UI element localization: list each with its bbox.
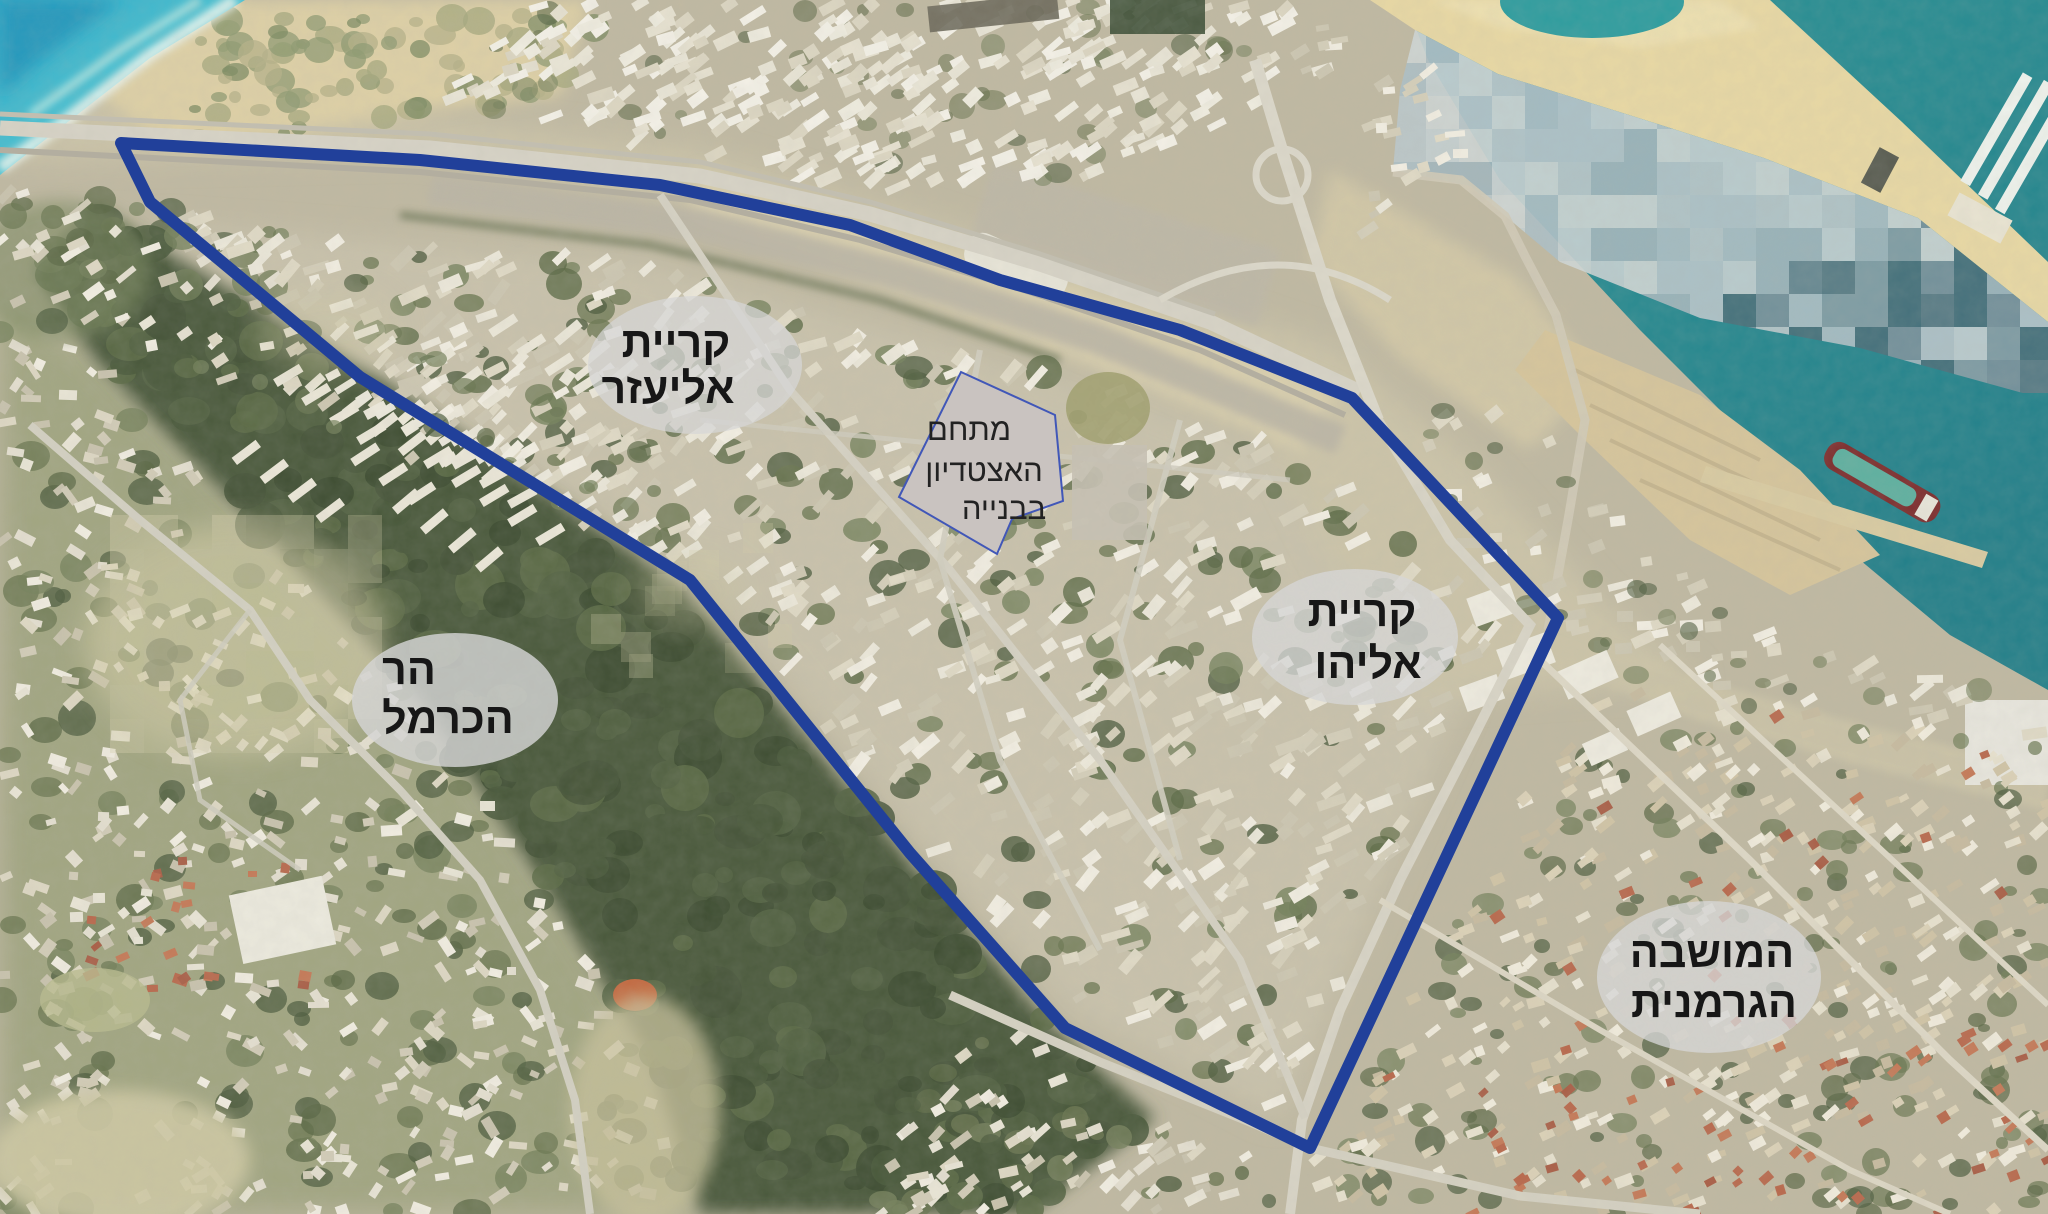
svg-text:בבנייה: בבנייה <box>962 491 1046 526</box>
svg-text:אליעזר: אליעזר <box>601 365 734 413</box>
svg-text:המושבה: המושבה <box>1630 929 1794 977</box>
svg-text:הכרמל: הכרמל <box>382 695 514 743</box>
svg-text:קריית: קריית <box>622 319 731 367</box>
svg-text:הגרמנית: הגרמנית <box>1631 979 1797 1027</box>
svg-text:האצטדיון: האצטדיון <box>925 453 1043 488</box>
svg-text:מתחם: מתחם <box>927 412 1011 447</box>
svg-text:אליהו: אליהו <box>1314 640 1421 688</box>
svg-text:קריית: קריית <box>1308 588 1417 636</box>
svg-text:הר: הר <box>382 646 436 694</box>
